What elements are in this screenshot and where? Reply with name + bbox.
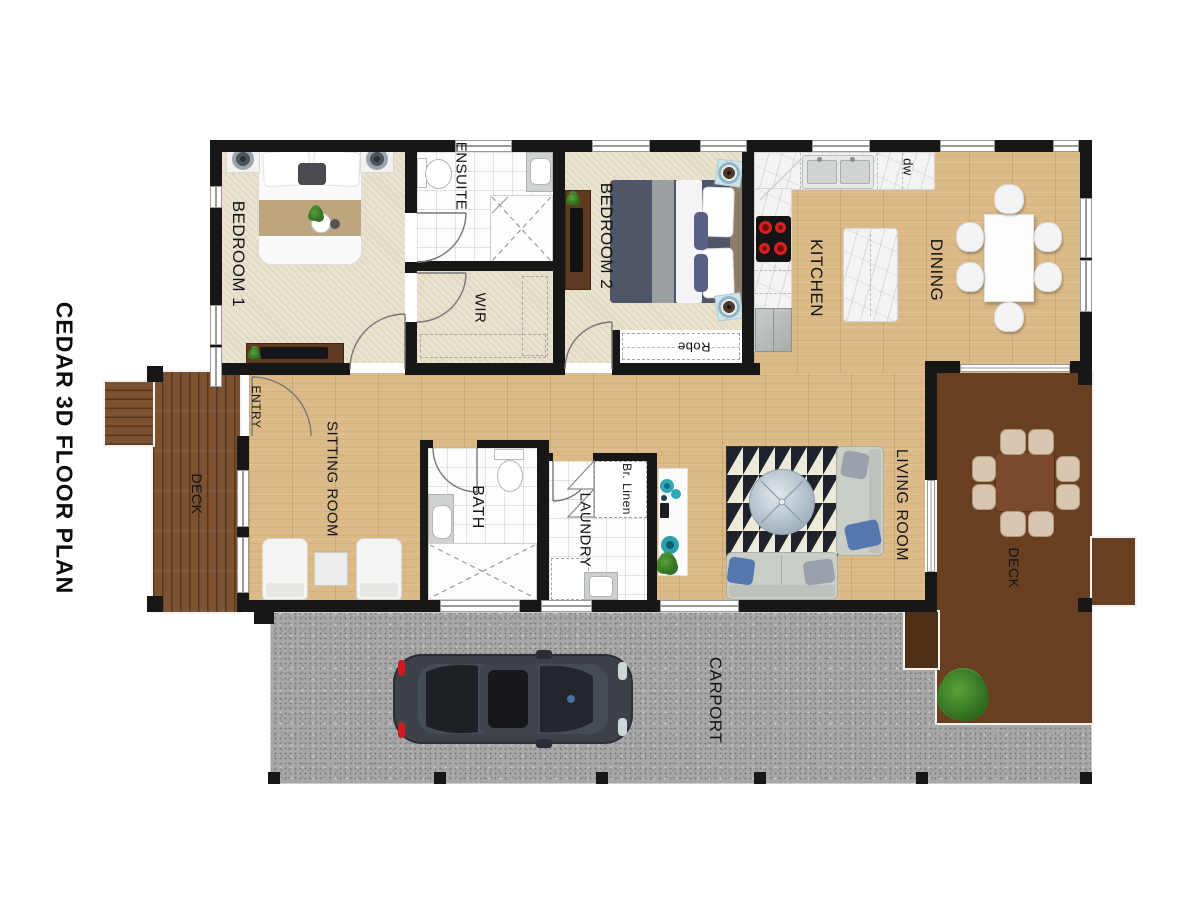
outdoor-chair (1000, 429, 1026, 455)
outdoor-chair (1028, 429, 1054, 455)
window (440, 600, 520, 612)
carport-post (268, 772, 280, 784)
console-tray (660, 503, 669, 518)
armchair-seat (266, 583, 304, 597)
bed2-accent-pillow (694, 254, 708, 292)
window (1080, 260, 1092, 312)
console-bowl (671, 489, 681, 499)
carport-post (434, 772, 446, 784)
bath-toilet-tank (494, 449, 524, 460)
wall (237, 436, 249, 470)
dining-chair (956, 222, 984, 252)
outdoor-chair (972, 484, 996, 510)
outdoor-chair (1056, 484, 1080, 510)
sofa-pillow (840, 450, 870, 480)
counter-cabinet-line (755, 293, 791, 295)
plant-icon (657, 554, 677, 574)
burner (759, 243, 770, 254)
floor-plan-canvas: CEDAR 3D FLOOR PLAN BEDROOM 1 ENSUITE WI… (0, 0, 1200, 900)
room-label-bath: BATH (468, 485, 486, 528)
outdoor-chair (972, 456, 996, 482)
wir-shelves (420, 334, 546, 358)
island-center-line (870, 234, 872, 316)
wall (547, 453, 553, 461)
wall (210, 363, 350, 375)
room-label-sitting-room: SITTING ROOM (324, 421, 341, 537)
room-label-bedroom1: BEDROOM 1 (228, 201, 248, 308)
window (210, 305, 222, 345)
deck-left-step (105, 382, 153, 445)
outdoor-table (995, 452, 1055, 512)
bedroom2-tv (570, 208, 583, 272)
console-dish (661, 495, 667, 501)
burner (775, 222, 786, 233)
dining-chair (994, 302, 1024, 332)
wall (405, 140, 417, 213)
counter-cabinet-line (755, 270, 791, 272)
deck-post (1078, 598, 1092, 612)
counter-cabinet-line (877, 153, 879, 189)
wall (405, 262, 417, 273)
window (592, 140, 650, 152)
burner (759, 221, 772, 234)
carport-post (754, 772, 766, 784)
window (237, 537, 249, 593)
coffee-table (749, 469, 815, 535)
ensuite-toilet-bowl (425, 159, 452, 189)
bath-toilet-bowl (497, 460, 523, 492)
plant-icon (249, 348, 260, 359)
room-label-entry: ENTRY (249, 386, 263, 429)
window (812, 140, 870, 152)
bath-shower (428, 543, 537, 600)
sink-bowl (807, 160, 837, 184)
wall (405, 322, 417, 375)
carport-post (916, 772, 928, 784)
deck-right-lower-step (905, 612, 938, 668)
dining-chair (1034, 262, 1062, 292)
sink-bowl (840, 160, 870, 184)
fridge (755, 308, 792, 352)
dining-table (984, 214, 1034, 302)
deck-post (147, 366, 163, 382)
carport-pillar (254, 604, 274, 624)
deck-post (1078, 371, 1092, 385)
wall (553, 140, 565, 375)
burner (774, 242, 787, 255)
dining-chair (1034, 222, 1062, 252)
room-label-robe: Robe (677, 340, 710, 355)
plant-icon (938, 670, 988, 720)
plant-icon (309, 207, 323, 221)
bed2-lamp (718, 296, 740, 318)
bed2-runner (652, 180, 674, 303)
outdoor-chair (1056, 456, 1080, 482)
wall (739, 600, 937, 612)
window (1053, 140, 1079, 152)
wall (237, 527, 249, 537)
bed2-accent-pillow (694, 212, 708, 250)
bath-basin (432, 505, 452, 539)
room-label-kitchen: KITCHEN (806, 239, 826, 317)
wall (925, 572, 937, 612)
plan-title: CEDAR 3D FLOOR PLAN (51, 302, 78, 594)
bed2-lamp (718, 162, 740, 184)
window (210, 347, 222, 387)
carport-post (1080, 772, 1092, 784)
armchair (262, 538, 308, 600)
armchair (356, 538, 402, 600)
window (940, 140, 995, 152)
car (388, 650, 638, 748)
dining-chair (956, 262, 984, 292)
wall (925, 373, 937, 480)
sliding-door (960, 364, 1070, 372)
wall (537, 440, 549, 612)
carport-post (596, 772, 608, 784)
sofa-pillow (726, 556, 755, 585)
wall (612, 330, 620, 365)
room-label-wir: WIR (472, 293, 489, 324)
sink-faucet (817, 157, 822, 162)
wall (405, 363, 565, 375)
wall (925, 361, 960, 373)
room-label-bedroom2: BEDROOM 2 (596, 183, 616, 290)
window (660, 600, 739, 612)
wall (417, 261, 553, 271)
window (210, 186, 222, 208)
bed1-headrest-tray (298, 163, 326, 185)
side-table (314, 552, 348, 586)
bed1-tray-cup (330, 219, 340, 229)
wall (647, 453, 657, 612)
wall (420, 440, 428, 612)
wall (593, 453, 647, 461)
room-label-carport: CARPORT (705, 657, 725, 743)
room-label-dining: DINING (926, 239, 946, 302)
ensuite-basin (530, 158, 551, 185)
label-br-linen: Br. Linen (620, 463, 634, 515)
label-dw: dw (901, 158, 916, 176)
sofa-seam (781, 555, 782, 585)
sofa-back (729, 585, 835, 597)
window (541, 600, 592, 612)
sink-faucet (850, 157, 855, 162)
wall (477, 440, 545, 448)
sofa-pillow (802, 558, 835, 586)
sliding-door (927, 480, 935, 572)
deck-post (147, 596, 163, 612)
wall (612, 363, 760, 375)
laundry-basin (589, 576, 613, 597)
fridge-divider (773, 309, 774, 351)
dining-chair (994, 184, 1024, 214)
kitchen-sink (802, 155, 874, 189)
room-label-laundry: LAUNDRY (577, 493, 594, 568)
armchair-seat (360, 583, 398, 597)
room-label-deck-left: DECK (189, 474, 205, 515)
window (700, 140, 747, 152)
room-label-ensuite: ENSUITE (453, 142, 470, 211)
window (1080, 198, 1092, 258)
room-label-deck-right: DECK (1006, 548, 1022, 589)
outdoor-chair (1000, 511, 1026, 537)
room-label-living-room: LIVING ROOM (892, 449, 910, 561)
deck-right-step (1092, 538, 1135, 605)
console-vase (661, 536, 679, 554)
outdoor-chair (1028, 511, 1054, 537)
window (237, 470, 249, 527)
ensuite-shower (490, 195, 553, 263)
plant-icon (567, 193, 579, 205)
cooktop (756, 216, 791, 262)
wall (742, 140, 754, 375)
bedroom1-tv (260, 347, 328, 359)
wall (420, 440, 433, 448)
